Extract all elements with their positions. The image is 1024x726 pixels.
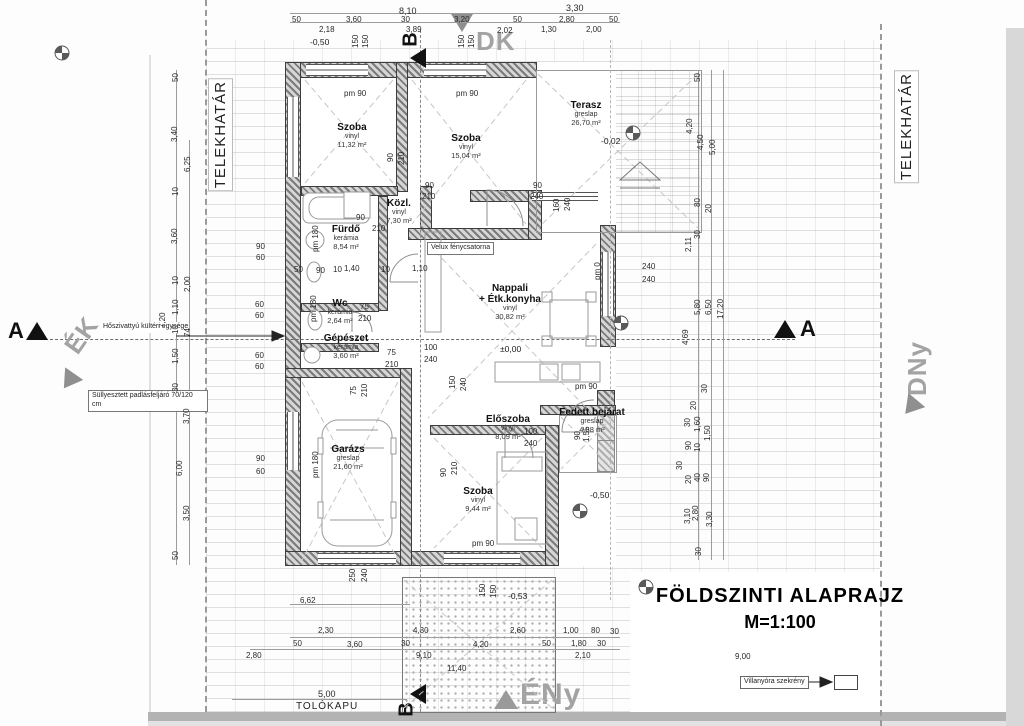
level-layer: -0,50-0,02±0,00-0,50-0,53 <box>0 0 1024 726</box>
level-value: -0,53 <box>508 591 527 601</box>
level-value: -0,02 <box>601 136 620 146</box>
level-value: -0,50 <box>310 37 329 47</box>
level-value: ±0,00 <box>500 344 521 354</box>
floorplan-page: { "meta": { "title": "FÖLDSZINTI ALAPRAJ… <box>0 0 1024 726</box>
level-value: -0,50 <box>590 490 609 500</box>
